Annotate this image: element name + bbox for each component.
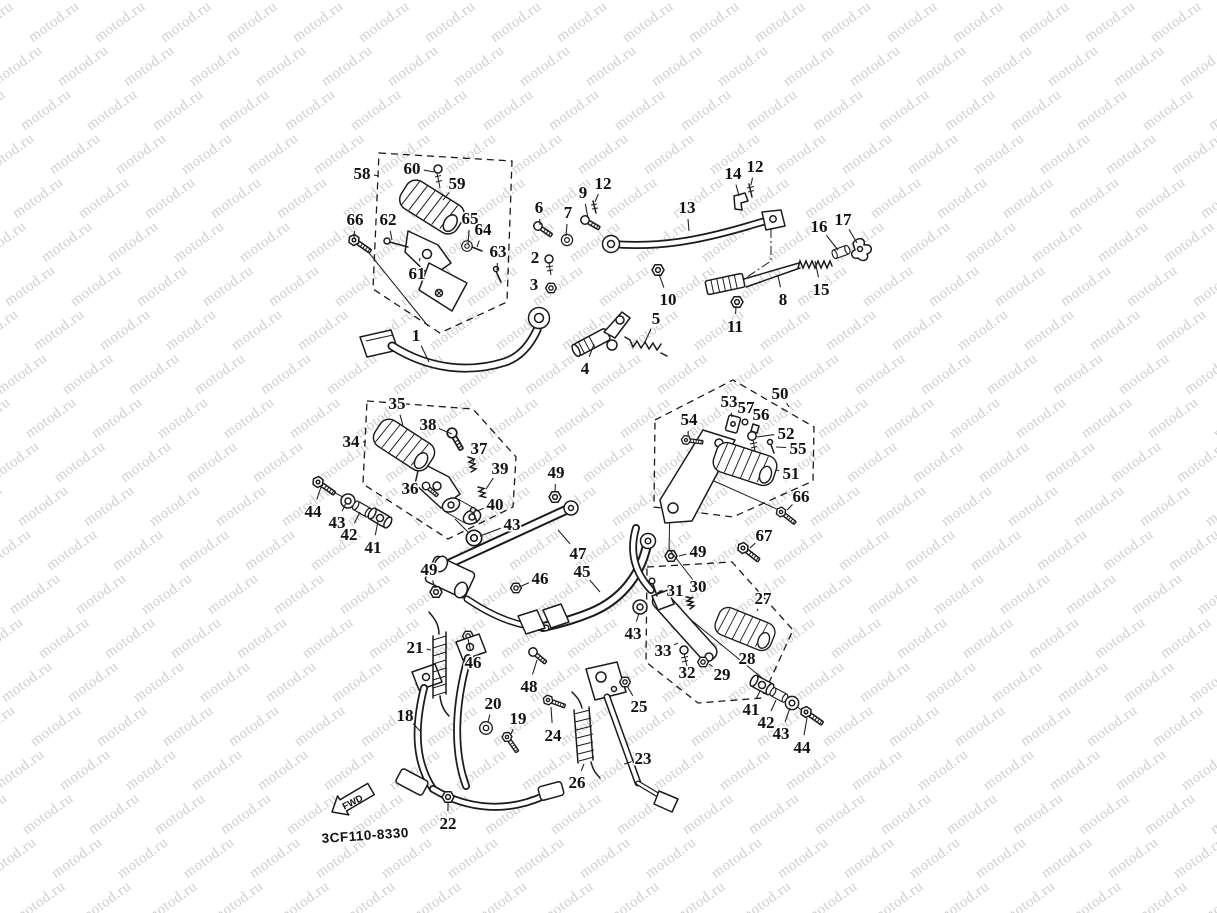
callout-label: 5 (652, 309, 661, 328)
leader-line (674, 643, 678, 645)
callout-label: 30 (690, 577, 707, 596)
callout-label: 36 (402, 479, 419, 498)
fwd-label: FWD (341, 793, 365, 813)
callout-label: 49 (548, 463, 565, 482)
leader-line (427, 649, 431, 650)
leader-line (804, 718, 807, 735)
diagram-code: 3CF110-8330 (321, 825, 409, 846)
leader-line (558, 530, 570, 544)
callout-label: 60 (404, 159, 421, 178)
leader-line (551, 707, 552, 723)
callout-label: 47 (570, 544, 588, 563)
callout-label: 50 (772, 384, 789, 403)
callout-label: 39 (492, 459, 509, 478)
leader-line (756, 691, 760, 698)
callout-label: 54 (681, 410, 699, 429)
callout-label: 58 (354, 164, 371, 183)
leader-line (849, 229, 857, 243)
callout-labels: 5860596662656463616791223145101113141216… (305, 157, 853, 833)
callout-label: 34 (343, 432, 361, 451)
callout-label: 19 (510, 709, 527, 728)
leader-line (771, 700, 776, 711)
callout-label: 38 (420, 415, 437, 434)
callout-label: 56 (753, 405, 770, 424)
callout-label: 55 (790, 439, 807, 458)
leader-line (709, 664, 713, 667)
leader-line (581, 764, 584, 771)
leader-line (776, 447, 786, 448)
fwd-arrow-icon: FWD (332, 783, 374, 815)
leader-line (787, 403, 790, 407)
callout-label: 4 (581, 359, 590, 378)
callout-label: 16 (811, 217, 828, 236)
callout-label: 13 (679, 198, 696, 217)
leader-line (477, 508, 484, 511)
leader-line (519, 583, 529, 587)
leader-line (679, 554, 686, 556)
callout-label: 22 (440, 814, 457, 833)
callout-label: 1 (412, 326, 421, 345)
callout-label: 43 (504, 515, 521, 534)
callout-label: 7 (564, 203, 573, 222)
leader-line (659, 274, 664, 288)
callout-label: 63 (490, 242, 507, 261)
callout-label: 2 (531, 248, 540, 267)
shift-lever-linkage-assembly (603, 184, 872, 295)
callout-label: 24 (545, 726, 563, 745)
leader-line (390, 231, 392, 240)
leader-line (533, 660, 538, 675)
callout-label: 15 (813, 280, 830, 299)
leader-line (645, 329, 651, 342)
leader-line (354, 512, 360, 523)
callout-label: 46 (532, 569, 549, 588)
callout-label: 31 (667, 581, 684, 600)
callout-label: 9 (579, 183, 588, 202)
rear-footrest-lower-assembly (649, 578, 825, 727)
callout-label: 12 (747, 157, 764, 176)
exploded-parts-diagram: FWD 3CF110-8330 586059666265646361679122… (0, 0, 1217, 913)
leader-line (750, 543, 755, 548)
callout-label: 40 (487, 495, 504, 514)
callout-label: 49 (690, 542, 707, 561)
callout-label: 41 (365, 538, 382, 557)
callout-label: 27 (755, 589, 773, 608)
callout-label: 10 (660, 290, 677, 309)
callout-label: 18 (397, 706, 414, 725)
callout-label: 6 (535, 198, 544, 217)
callout-label: 32 (679, 663, 696, 682)
callout-label: 17 (835, 210, 853, 229)
callout-label: 45 (574, 562, 591, 581)
leader-line (511, 729, 513, 734)
callout-label: 49 (421, 560, 438, 579)
callout-label: 44 (305, 502, 323, 521)
callout-label: 51 (783, 464, 800, 483)
leader-line (688, 219, 689, 231)
callout-label: 64 (475, 220, 493, 239)
callout-label: 44 (794, 738, 812, 757)
callout-label: 12 (595, 174, 612, 193)
leader-line (692, 597, 693, 598)
leader-line (627, 686, 633, 696)
callout-label: 25 (631, 697, 648, 716)
callout-label: 23 (635, 749, 652, 768)
leader-line (477, 240, 479, 247)
callout-label: 14 (725, 164, 743, 183)
callout-label: 67 (756, 526, 774, 545)
callout-label: 3 (530, 275, 539, 294)
callout-label: 48 (521, 677, 538, 696)
parts-fiche-page: motod.rumotod.rumotod.rumotod.rumotod.ru… (0, 0, 1217, 913)
leader-line (419, 258, 420, 261)
callout-label: 46 (465, 653, 482, 672)
callout-label: 35 (389, 394, 406, 413)
callout-label: 62 (380, 210, 397, 229)
callout-label: 43 (625, 624, 642, 643)
callout-label: 66 (793, 487, 810, 506)
callout-label: 33 (655, 641, 672, 660)
leader-line (826, 235, 838, 250)
callout-label: 43 (773, 724, 790, 743)
leader-line (486, 478, 493, 489)
callout-label: 21 (407, 638, 424, 657)
leader-line (785, 708, 790, 722)
leader-line (757, 435, 774, 437)
leader-line (595, 194, 598, 202)
callout-label: 20 (485, 694, 502, 713)
callout-label: 61 (409, 264, 426, 283)
callout-label: 11 (727, 317, 743, 336)
leader-line (317, 487, 321, 500)
leader-line (776, 470, 779, 471)
callout-label: 37 (471, 439, 489, 458)
leader-line (424, 170, 434, 172)
callout-label: 42 (341, 525, 358, 544)
callout-label: 8 (779, 290, 788, 309)
callout-label: 66 (347, 210, 364, 229)
leader-line (488, 715, 490, 722)
leader-line (778, 276, 781, 287)
callout-label: 28 (739, 649, 756, 668)
leader-line (757, 609, 758, 611)
leader-line (480, 528, 501, 536)
callout-label: 29 (714, 665, 731, 684)
callout-label: 53 (721, 392, 738, 411)
callout-label: 26 (569, 773, 586, 792)
callout-label: 59 (449, 174, 466, 193)
leader-line (751, 178, 753, 185)
leader-line (590, 580, 600, 592)
